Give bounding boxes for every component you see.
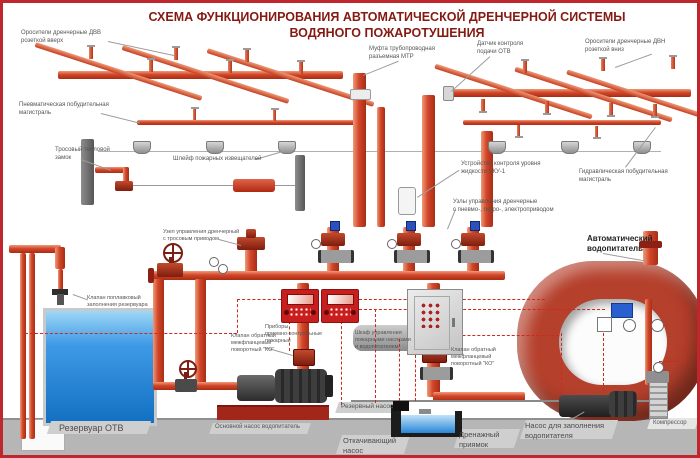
- wire-dashed: [237, 299, 238, 333]
- wire-dashed: [415, 355, 416, 401]
- wire-dashed: [237, 299, 281, 300]
- sprinkler-down-icon: [545, 101, 549, 113]
- fire-detector-icon: [206, 141, 224, 154]
- panel-round-button: [284, 310, 289, 315]
- drain-pit-bottom: [391, 433, 462, 437]
- feeder-level-gauge: [597, 317, 612, 332]
- fill-pump-motor: [609, 391, 637, 417]
- unit-actuator: [470, 221, 480, 231]
- wire-dashed: [25, 333, 237, 334]
- fill-pump: [559, 395, 613, 417]
- label-compressor: Компрессор: [653, 420, 687, 428]
- control-cabinet: [407, 289, 463, 355]
- label-float-valve: Клапан поплавковый заполнения резервуара: [87, 295, 148, 309]
- pipe-inlet-elbow: [55, 247, 65, 269]
- hydraulic-nozzle-icon: [595, 126, 598, 137]
- cable-unit-pipe: [245, 249, 257, 273]
- drencher-system-schematic: СХЕМА ФУНКЦИОНИРОВАНИЯ АВТОМАТИЧЕСКОЙ ДР…: [0, 0, 700, 458]
- fire-control-panel: [281, 289, 319, 323]
- label-otv-sensor: Датчик контроля подачи ОТВ: [477, 41, 523, 57]
- thermal-lock-cylinder: [233, 179, 275, 192]
- wire-dashed: [659, 361, 685, 362]
- sprinkler-up-icon: [245, 50, 249, 62]
- sprinkler-up-icon: [601, 59, 605, 71]
- hydraulic-nozzle-icon: [517, 125, 520, 136]
- feeder-nameplate: [611, 303, 633, 318]
- pipe-distribution-right: [448, 89, 691, 97]
- float-valve-stem: [57, 294, 64, 305]
- level-control-device: [398, 187, 416, 215]
- pipe-riser: [422, 95, 435, 227]
- leader-line: [363, 61, 399, 76]
- panel-round-button: [324, 310, 329, 315]
- pressure-gauge-icon: [209, 257, 219, 267]
- label-hydraulic-main: Гидравлическая побудительная магистраль: [579, 169, 668, 185]
- coupling-mtr-band: [350, 89, 371, 100]
- unit-actuator: [406, 221, 416, 231]
- panel-buttons: [329, 307, 351, 317]
- pressure-gauge-icon: [311, 239, 321, 249]
- pipe-end-flange: [148, 268, 154, 283]
- pipe-inlet: [9, 245, 61, 253]
- pipe-drain-pair: [20, 253, 26, 439]
- leader-line: [73, 294, 88, 300]
- panel-display: [327, 294, 354, 305]
- sprinkler-up-icon: [299, 62, 303, 74]
- drain-pit-water: [401, 415, 455, 433]
- fire-detector-icon: [133, 141, 151, 154]
- wire-dashed: [561, 333, 562, 395]
- label-check-valve-2: Клапан обратный межфланцевый поворотный …: [451, 347, 496, 368]
- wall-column: [295, 155, 305, 211]
- pipe-inlet-thin: [58, 269, 63, 291]
- sprinkler-up-icon: [174, 48, 178, 60]
- check-valve-flange: [420, 367, 453, 380]
- pipe-hydraulic-main: [463, 120, 661, 125]
- main-pump-endcap: [325, 375, 333, 397]
- sprinkler-down-icon: [609, 103, 613, 115]
- compressor-body: [649, 381, 668, 419]
- pipe-supply-main: [153, 271, 505, 280]
- pit-sensor: [419, 409, 431, 414]
- main-pump-motor: [275, 369, 327, 403]
- label-drain-pump: Откачивающий насос: [343, 436, 396, 456]
- label-drain-pit: Дренажный приямок: [459, 430, 499, 450]
- label-control-units: Узлы управления дренчерные с пневмо-, ги…: [453, 199, 554, 215]
- sprinkler-down-icon: [653, 104, 657, 116]
- label-main-pump: Основной насос водопитатель: [215, 424, 300, 432]
- cabinet-handle: [452, 318, 455, 327]
- unit-valve: [321, 233, 345, 246]
- sprinkler-up-icon: [228, 61, 232, 73]
- panel-display: [287, 294, 314, 305]
- unit-valve: [461, 233, 485, 246]
- thermal-lock-box: [115, 181, 133, 191]
- pipe-suction: [153, 382, 243, 390]
- label-cable-lock: Тросовый тепловой замок: [55, 147, 110, 163]
- unit-flange-body: [318, 250, 354, 263]
- label-detector-loop: Шлейф пожарных извещателей: [173, 156, 262, 164]
- label-control-panels: Приборы приемно-контрольные пожарные: [265, 324, 322, 345]
- label-pneumatic-main: Пневматическая побудительная магистраль: [19, 102, 109, 118]
- leader-line: [625, 127, 656, 168]
- pipe-drain-pair: [29, 253, 35, 439]
- label-auto-feeder: Автоматический водопитатель: [587, 234, 653, 255]
- label-cable-unit: Узел управления дренчерный с тросовым пр…: [163, 229, 239, 243]
- gate-valve-wheel-icon: [163, 243, 183, 263]
- wire-dashed: [359, 309, 605, 310]
- pressure-gauge-icon: [651, 319, 664, 332]
- pressure-gauge-icon: [387, 239, 397, 249]
- sprinkler-up-icon: [149, 60, 153, 72]
- pressure-gauge-icon: [623, 319, 636, 332]
- sprinkler-up-icon: [89, 47, 93, 59]
- panel-round-button: [311, 310, 316, 315]
- check-valve: [293, 349, 315, 366]
- cable-unit-valve: [237, 237, 265, 250]
- fire-detector-icon: [488, 141, 506, 154]
- label-fill-pump: Насос для заполнения водопитателя: [525, 421, 604, 441]
- unit-actuator: [330, 221, 340, 231]
- fire-control-panel: [321, 289, 359, 323]
- drain-pump-device: [393, 401, 409, 411]
- pneumatic-nozzle-icon: [193, 109, 196, 120]
- label-level-control: Устройство контроля уровня жидкости УКУ-…: [461, 161, 540, 177]
- unit-flange-body: [458, 250, 494, 263]
- pneumatic-nozzle-icon: [273, 110, 276, 121]
- pipe-pneumatic-main: [137, 120, 363, 125]
- wire-dashed: [375, 309, 376, 403]
- suction-valve-body: [175, 379, 197, 392]
- label-sprinklers-down: Оросители дренчерные ДВН розеткой вниз: [585, 39, 665, 55]
- leader-line: [615, 54, 652, 68]
- main-pump-head: [237, 375, 275, 401]
- panel-round-button: [351, 310, 356, 315]
- pipe-riser-thin: [377, 107, 385, 227]
- sprinkler-up-icon: [523, 61, 527, 73]
- sprinkler-down-icon: [481, 99, 485, 111]
- label-reserve-pump: Резервный насос: [341, 403, 393, 411]
- unit-valve: [397, 233, 421, 246]
- label-coupling-mtr: Муфта трубопроводная разъемная МТР: [369, 46, 435, 62]
- wire-dashed: [341, 321, 342, 405]
- page-subtitle: ВОДЯНОГО ПОЖАРОТУШЕНИЯ: [83, 26, 691, 40]
- cabinet-leds: [420, 302, 440, 328]
- label-sprinklers-up: Оросители дренчерные ДВВ розеткой вверх: [21, 30, 101, 46]
- gate-valve-body: [157, 263, 183, 277]
- unit-flange-body: [394, 250, 430, 263]
- pump-foundation: [217, 405, 329, 420]
- sprinkler-up-icon: [671, 57, 675, 69]
- gate-valve-wheel-icon: [179, 360, 197, 378]
- reservoir-tank: [43, 308, 157, 426]
- cable-unit-bonnet: [246, 229, 256, 238]
- label-reservoir: Резервуар ОТВ: [59, 423, 123, 435]
- wire-dashed: [603, 333, 604, 391]
- page-title: СХЕМА ФУНКЦИОНИРОВАНИЯ АВТОМАТИЧЕСКОЙ ДР…: [83, 10, 691, 24]
- wire-dashed: [685, 303, 686, 361]
- pipe-drop: [153, 279, 164, 385]
- pressure-gauge-icon: [653, 362, 664, 373]
- pressure-gauge-icon: [218, 264, 228, 274]
- label-control-cabinet: Шкаф управления пожарными насосами и вод…: [355, 330, 411, 351]
- panel-buttons: [289, 307, 311, 317]
- pressure-gauge-icon: [451, 239, 461, 249]
- fire-detector-icon: [561, 141, 579, 154]
